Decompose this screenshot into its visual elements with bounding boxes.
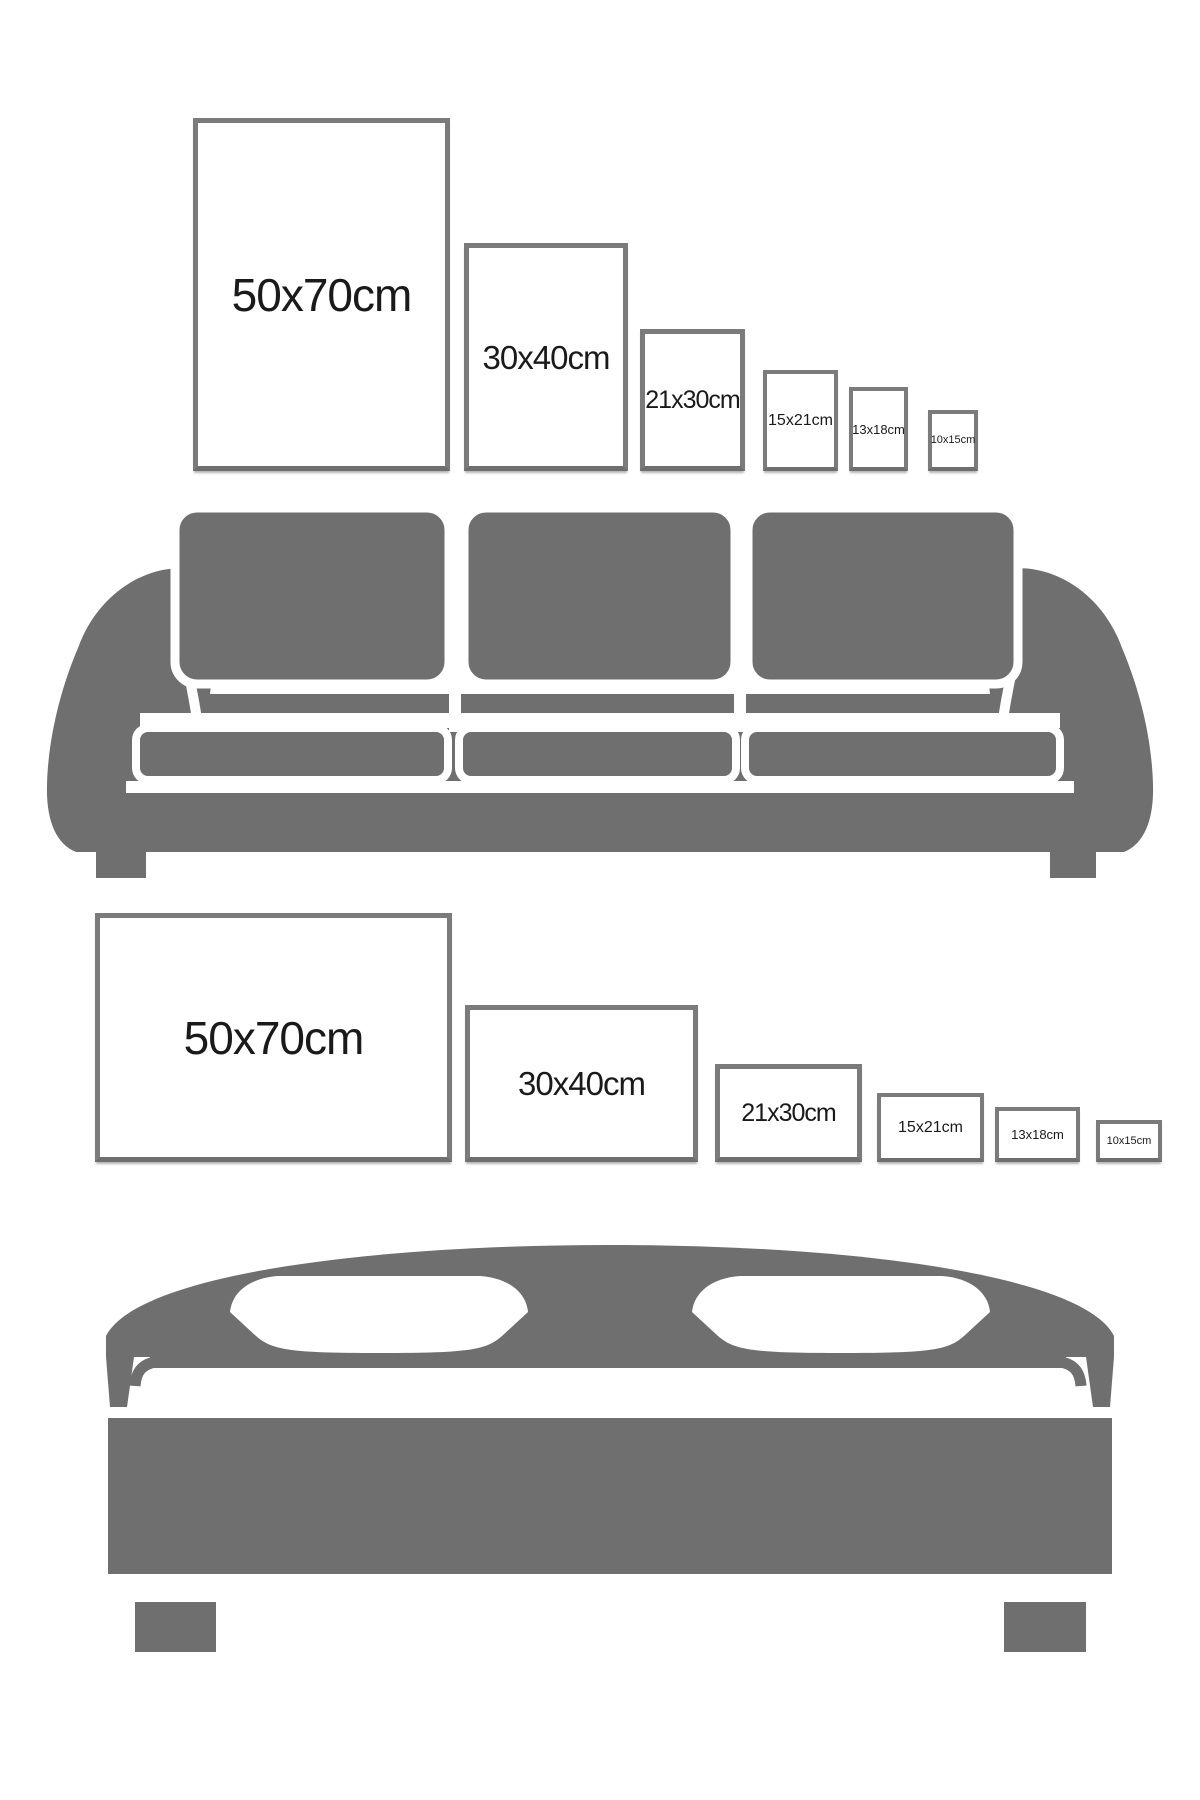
sofa-seam-vertical-right <box>734 688 746 732</box>
size-label: 15x21cm <box>768 413 833 429</box>
size-label: 30x40cm <box>483 341 610 374</box>
size-label: 21x30cm <box>645 388 739 413</box>
sofa-seam-vertical-left <box>449 688 461 732</box>
bed-base <box>108 1418 1112 1574</box>
bed-mattress-rail <box>150 1357 1066 1368</box>
size-label: 50x70cm <box>184 1015 364 1061</box>
size-label: 13x18cm <box>852 423 905 436</box>
size-frame-21x30-landscape: 21x30cm <box>715 1064 862 1162</box>
bed-rail-curl-left <box>135 1362 156 1386</box>
bed-pillow-right <box>692 1276 990 1353</box>
size-frame-15x21-portrait: 15x21cm <box>763 370 838 471</box>
size-frame-13x18-portrait: 13x18cm <box>849 387 908 471</box>
size-frame-21x30-portrait: 21x30cm <box>640 329 745 471</box>
sofa-foot-left <box>96 852 146 878</box>
size-frame-50x70-portrait: 50x70cm <box>193 118 450 471</box>
size-comparison-diagram: 50x70cm 30x40cm 21x30cm 15x21cm 13x18cm … <box>0 0 1200 1800</box>
size-frame-13x18-landscape: 13x18cm <box>995 1107 1080 1162</box>
bed-foot-right <box>1004 1602 1086 1652</box>
size-label: 10x15cm <box>931 435 976 446</box>
size-frame-50x70-landscape: 50x70cm <box>95 913 452 1162</box>
bed-pillow-left <box>230 1276 528 1353</box>
size-label: 10x15cm <box>1107 1136 1152 1147</box>
sofa-back-cushion <box>464 508 735 684</box>
bed-illustration <box>50 1240 1170 1660</box>
sofa-back-cushion <box>748 508 1018 684</box>
size-frame-10x15-portrait: 10x15cm <box>928 410 978 471</box>
sofa-seat-rail <box>745 728 1060 780</box>
size-frame-30x40-landscape: 30x40cm <box>465 1005 698 1162</box>
size-frame-10x15-landscape: 10x15cm <box>1096 1120 1162 1162</box>
sofa-foot-right <box>1050 852 1096 878</box>
bed-headboard-leg-right <box>1086 1357 1114 1407</box>
bed-foot-left <box>135 1602 216 1652</box>
size-label: 30x40cm <box>518 1067 645 1100</box>
size-label: 21x30cm <box>741 1101 835 1126</box>
size-label: 50x70cm <box>232 272 412 318</box>
sofa-seat-rail <box>136 728 448 780</box>
size-label: 15x21cm <box>898 1120 963 1136</box>
bed-rail-curl-right <box>1060 1362 1081 1386</box>
size-frame-30x40-portrait: 30x40cm <box>464 243 628 471</box>
sofa-seat-rail <box>459 728 736 780</box>
bed-headboard-leg-left <box>106 1357 134 1407</box>
size-label: 13x18cm <box>1011 1128 1064 1141</box>
sofa-illustration <box>40 500 1160 890</box>
sofa-back-cushion <box>175 508 449 684</box>
size-frame-15x21-landscape: 15x21cm <box>877 1093 984 1162</box>
